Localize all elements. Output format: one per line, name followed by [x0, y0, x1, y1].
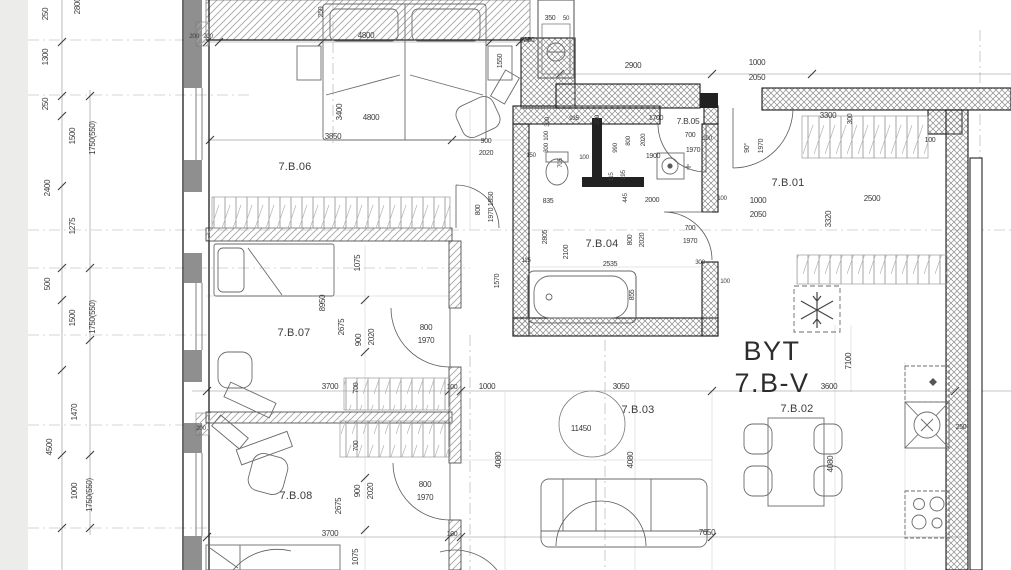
dim-label: 100 [717, 195, 727, 202]
dim-label: 2000 [645, 197, 660, 204]
dim-label: 1470 [70, 403, 79, 420]
dim-label: 3300 [820, 111, 837, 120]
dim-label: 4080 [626, 451, 635, 468]
dim-label: 2020 [366, 482, 375, 499]
dim-label: 2675 [337, 318, 346, 335]
dim-label: 350 [545, 15, 556, 22]
dim-label: 100 [925, 137, 936, 144]
dim-label: 935 [569, 115, 579, 122]
dim-label: 445 [622, 192, 629, 202]
dim-label: 1750(550) [88, 120, 97, 154]
dim-label: 800 [419, 480, 432, 489]
dim-label: 800 [627, 234, 634, 245]
dim-label: 3700 [322, 529, 339, 538]
dim-label: 990 [612, 142, 619, 152]
dim-label: 300 [543, 142, 550, 152]
dim-label: 100 [447, 531, 458, 538]
dim-label: 900 [354, 333, 363, 346]
dim-label: 3850 [325, 132, 342, 141]
dim-label: 1500 [68, 127, 77, 144]
dim-label: 100 [447, 384, 458, 391]
area-value: 11450 [571, 424, 592, 433]
dim-label: 1500 [68, 309, 77, 326]
dim-label: 7100 [844, 352, 853, 369]
dim-label: 1970 [417, 493, 434, 502]
dim-label: 195 [620, 169, 627, 179]
room-label-7b08: 7.B.08 [279, 490, 312, 502]
dim-label: 1000 [479, 382, 496, 391]
dim-label: 1970 [683, 238, 698, 245]
floor-plan-page: 250 2800 1300 250 1500 1750(550) 2400 12… [0, 0, 1011, 570]
dim-label: 115 [522, 257, 532, 264]
dim-label: 1570 [494, 273, 501, 288]
dim-label: 3600 [821, 382, 838, 391]
dim-label: 3700 [322, 382, 339, 391]
dim-label: 250 [318, 6, 325, 17]
apartment-title-line1: BYT [743, 336, 800, 366]
room-label-7b01: 7.B.01 [771, 177, 804, 189]
dim-label: 2020 [639, 232, 646, 247]
dim-label: 1000 [749, 58, 766, 67]
dim-label: 1075 [351, 548, 360, 565]
dim-label: 250 [41, 7, 50, 20]
dim-label: 1000 [750, 196, 767, 205]
wc-partition [592, 118, 602, 182]
dim-label: 1300 [41, 48, 50, 65]
dim-label: 2500 [864, 194, 881, 203]
dim-label: 4800 [358, 31, 375, 40]
dim-label: 4080 [494, 451, 503, 468]
dim-label: 2020 [479, 150, 494, 157]
room-label-7b06: 7.B.06 [278, 161, 311, 173]
dim-label: 2050 [750, 210, 767, 219]
dim-label: 300 [847, 113, 854, 124]
dim-label: 2800 [73, 0, 82, 14]
dim-label: 3400 [335, 103, 344, 120]
dim-label: 1970 [686, 147, 701, 154]
dim-label: 700 [685, 132, 696, 139]
dim-label: 50 [563, 15, 570, 22]
dim-label: 200 [196, 425, 206, 432]
dim-label: 200 [594, 114, 601, 124]
dim-label: 800 [475, 204, 482, 215]
background [0, 0, 1011, 570]
dim-label: 100 [702, 135, 712, 142]
dim-label: 1075 [353, 254, 362, 271]
dim-label: 300 [544, 116, 551, 126]
dim-label: 800 [625, 135, 632, 145]
dim-label: 1700 [649, 115, 664, 122]
dim-label: 300 [695, 259, 705, 266]
dim-label: 4500 [45, 438, 54, 455]
dim-label: 2020 [367, 328, 376, 345]
dim-label: 2100 [563, 244, 570, 259]
dim-label: 100 [543, 130, 550, 140]
room-label-7b05: 7.B.05 [677, 116, 700, 126]
floor-plan-canvas: 250 2800 1300 250 1500 1750(550) 2400 12… [0, 0, 1011, 570]
room-label-7b04: 7.B.04 [585, 238, 618, 250]
dim-label: 700 [685, 225, 696, 232]
dim-label: 1970 [758, 138, 765, 153]
dim-label: 3050 [613, 382, 630, 391]
dim-label: 8950 [318, 294, 327, 311]
dim-label: 1750(550) [88, 299, 97, 333]
dim-label: 835 [543, 198, 554, 205]
dim-label: 2535 [603, 261, 618, 268]
dim-label: 700 [353, 382, 360, 393]
room-label-7b02: 7.B.02 [780, 403, 813, 415]
dim-label: 800 [420, 323, 433, 332]
dim-label: 250 [524, 37, 535, 44]
dim-label: 2050 [749, 73, 766, 82]
dim-label: 700 [353, 440, 360, 451]
dim-label: 705 [557, 157, 564, 167]
dim-label: 7650 [699, 528, 716, 537]
dim-label: 2900 [625, 61, 642, 70]
dim-label: 1750(550) [85, 477, 94, 511]
dim-label: 100 [579, 154, 589, 161]
dim-label: 200 [203, 33, 213, 40]
dim-label: 200 [189, 33, 199, 40]
dim-label: 115 [608, 172, 615, 182]
dim-label: 3320 [824, 210, 833, 227]
facade-wall-right [970, 158, 982, 570]
dim-label: 150 [526, 152, 536, 159]
dim-label: 100 [720, 278, 730, 285]
dim-label: 855 [629, 289, 636, 300]
room-label-7b07: 7.B.07 [277, 327, 310, 339]
apartment-title-line2: 7.B-V [734, 368, 809, 398]
entry-pier [700, 93, 718, 108]
room-label-7b03: 7.B.03 [621, 404, 654, 416]
dim-label: 1900 [646, 153, 661, 160]
dim-label: 1550 [497, 53, 504, 68]
dim-label: 500 [43, 277, 52, 290]
dim-label: 250 [956, 424, 967, 431]
dim-label: 2675 [334, 497, 343, 514]
dim-label: 2400 [43, 179, 52, 196]
dim-label: 900 [353, 484, 362, 497]
dim-label: 250 [41, 97, 50, 110]
dim-label: 1275 [68, 217, 77, 234]
dim-label: 1970 [418, 336, 435, 345]
left-margin [0, 0, 28, 570]
dim-label: 1000 [70, 482, 79, 499]
dim-label: 900 [481, 138, 492, 145]
dim-label: 4800 [363, 113, 380, 122]
dim-label: 2805 [542, 229, 549, 244]
dim-label: 4080 [826, 455, 835, 472]
dim-label: 90° [743, 143, 751, 153]
dim-label: 1970 1850 [488, 191, 495, 222]
dim-label: 2020 [640, 133, 647, 146]
